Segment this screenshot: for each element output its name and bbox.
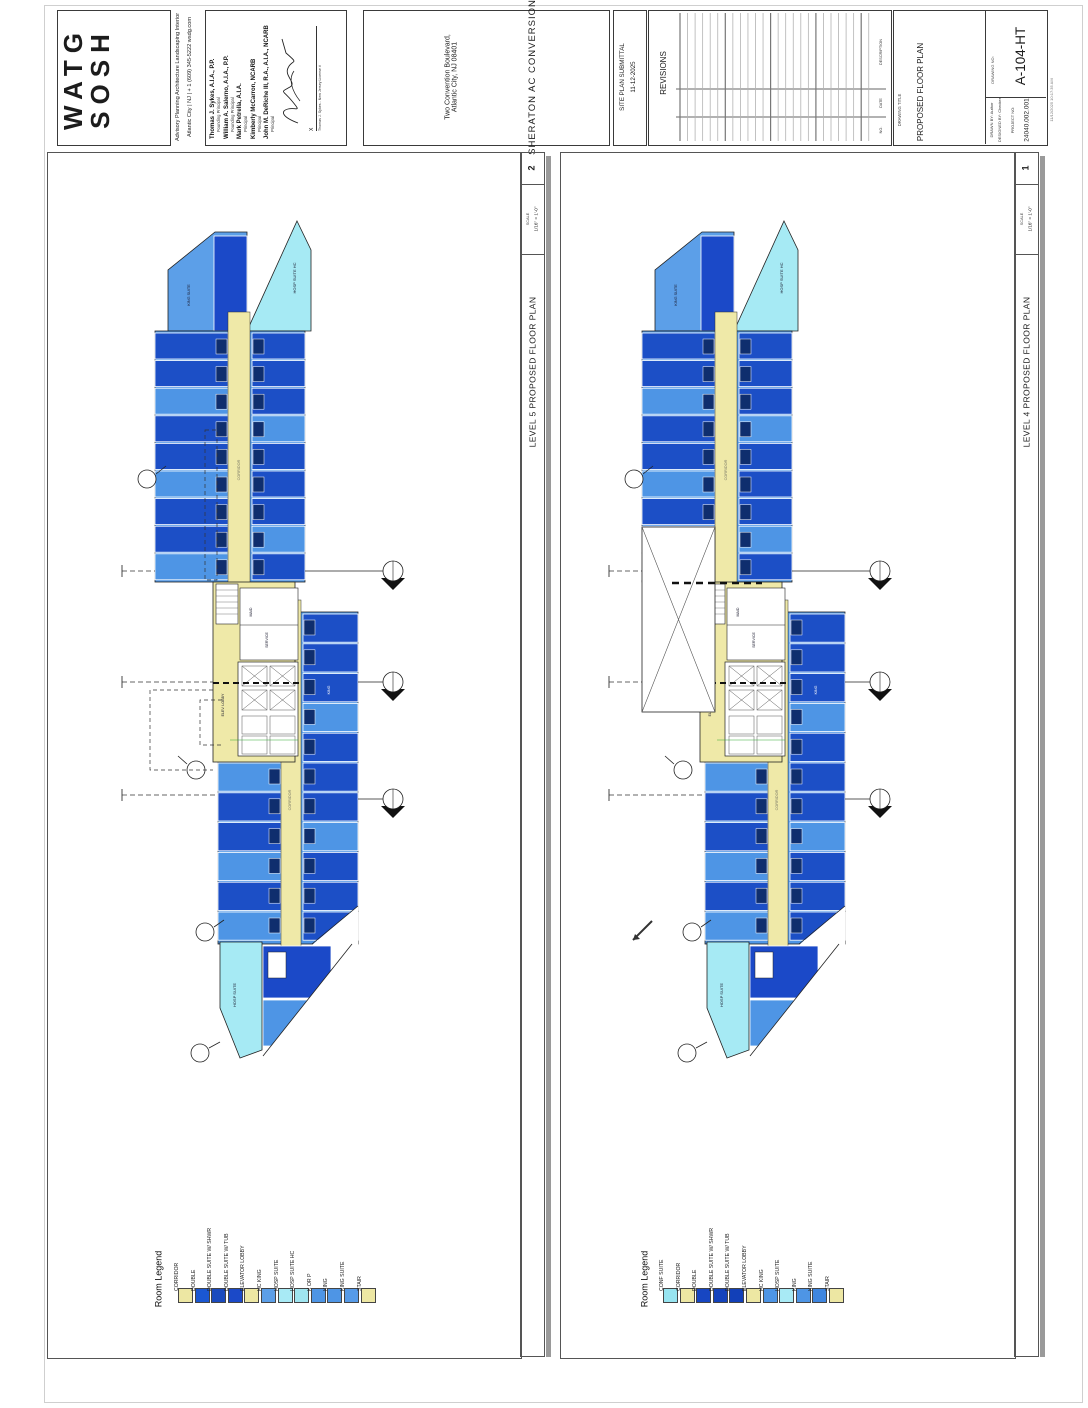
revisions-col-description: DESCRIPTION [879, 39, 883, 65]
viewport-level4-number: 1 [1021, 165, 1030, 170]
project-box [363, 10, 610, 146]
signature-icon [278, 31, 304, 131]
firm-contact: Atlantic City | NJ | + 1 (609) 345-5222 … [188, 17, 194, 137]
submittal-date: 11-12-2025 [631, 61, 638, 92]
legend-item-label: CONF SUITE [659, 1260, 665, 1291]
legend-level5: CORRIDOR DOUBLE DOUBLE SUITE W/ SHWR DOU… [178, 1288, 398, 1304]
person-title: Founding Principal [230, 15, 235, 132]
signature-mark: X [309, 26, 315, 131]
print-stamp: 11/12/2025 10:17:35 AM [1050, 78, 1054, 121]
legend-item: STAIR [361, 1288, 376, 1303]
firm-services: Advisory Planning Architecture Landscapi… [176, 13, 182, 141]
drawn-by: DRAWN BY: Author [990, 103, 994, 138]
legend-item-label: CORRIDOR [174, 1263, 180, 1291]
viewport-level5-scale-label: SCALE [526, 213, 530, 225]
person-title: Principal [270, 15, 275, 132]
legend-item-label: HOSP SUITE [775, 1260, 781, 1291]
legend-level5-title: Room Legend [154, 1251, 163, 1308]
person-entry: John M. DeRiche III, R.A., A.I.A., NCARB… [264, 15, 275, 139]
project-no: 24040.002.001 [1025, 98, 1032, 141]
revisions-title: REVISIONS [660, 51, 668, 95]
submittal-title: SITE PLAN SUBMITTAL [620, 43, 627, 111]
signature-note: Thomas J. Sykes - New Jersey License # [316, 26, 322, 131]
legend-item-swatch [361, 1288, 376, 1303]
viewport-level5 [47, 152, 522, 1359]
drawing-no-label: DRAWING NO: [991, 56, 995, 83]
viewport-level4 [560, 152, 1016, 1359]
firm-logo-line2: SOSH [87, 14, 114, 142]
drawing-title-label: DRAWING TITLE [898, 94, 902, 127]
legend-item-label: ELEVATOR LOBBY [742, 1245, 748, 1291]
revisions-box [648, 10, 892, 146]
legend-item-label: ELEVATOR LOBBY [240, 1245, 246, 1291]
legend-item: STAIR [829, 1288, 844, 1303]
person-title: Founding Principal [216, 15, 221, 132]
signature-block: X Thomas J. Sykes - New Jersey License # [278, 26, 322, 131]
viewport-level5-number: 2 [527, 165, 536, 170]
firm-logo-line1: WATG [60, 14, 87, 142]
legend-level4: CONF SUITE CORRIDOR DOUBLE DOUBLE SUITE … [663, 1288, 863, 1304]
project-address-line1: Two Convention Boulevard, [445, 34, 452, 120]
designed-by: DESIGNED BY: Checker [998, 98, 1002, 142]
legend-item-label: DOUBLE SUITE W/ TUB [725, 1233, 731, 1291]
project-no-label: PROJECT NO: [1011, 107, 1015, 134]
legend-item-label: CORRIDOR [676, 1263, 682, 1291]
person-title: Principal [257, 15, 262, 132]
viewport-level4-title: LEVEL 4 PROPOSED FLOOR PLAN [1023, 297, 1032, 448]
logo-box: WATG SOSH [57, 10, 171, 146]
person-entry: Thomas J. Sykes, A.I.A., P.P. Founding P… [210, 15, 221, 139]
legend-item-label: HOSP SUITE HC [290, 1251, 296, 1291]
legend-level4-title: Room Legend [640, 1251, 649, 1308]
principals-box: Thomas J. Sykes, A.I.A., P.P. Founding P… [205, 10, 347, 146]
legend-item-label: DOUBLE SUITE W/ SHWR [709, 1228, 715, 1291]
viewport-level5-scale: 1/16" = 1'-0" [535, 207, 540, 232]
legend-item-label: DOUBLE SUITE W/ TUB [224, 1233, 230, 1291]
legend-item-swatch [829, 1288, 844, 1303]
firm-logo: WATG SOSH [60, 14, 115, 142]
viewport-level4-scale-label: SCALE [1020, 213, 1024, 225]
person-title: Principal [243, 15, 248, 132]
viewport-level4-scale: 1/16" = 1'-0" [1029, 207, 1034, 232]
legend-item-label: DOUBLE SUITE W/ SHWR [207, 1228, 213, 1291]
drawing-title: PROPOSED FLOOR PLAN [917, 43, 925, 141]
revisions-col-date: DATE [879, 98, 883, 108]
revisions-col-no: NO. [879, 127, 883, 134]
person-entry: Kimberly McCarron, NCARB Principal [251, 15, 262, 139]
legend-item-label: HOSP SUITE [274, 1260, 280, 1291]
project-name: SHERATON AC CONVERSION [528, 0, 538, 155]
legend-item-label: KING SUITE [808, 1262, 814, 1291]
legend-item-label: KING SUITE [340, 1262, 346, 1291]
project-address-line2: Atlantic City, NJ 08401 [452, 34, 459, 120]
sheet-page: WATG SOSH Advisory Planning Architecture… [0, 0, 1088, 1408]
viewport-level5-title: LEVEL 5 PROPOSED FLOOR PLAN [529, 297, 538, 448]
project-address: Two Convention Boulevard, Atlantic City,… [445, 34, 460, 120]
person-entry: Mark Petrella, A.I.A. Principal [237, 15, 248, 139]
drawing-no: A-104-HT [1014, 27, 1028, 86]
principals-list: Thomas J. Sykes, A.I.A., P.P. Founding P… [208, 15, 275, 141]
person-entry: William A. Salerno, A.I.A., P.P. Foundin… [224, 15, 235, 139]
